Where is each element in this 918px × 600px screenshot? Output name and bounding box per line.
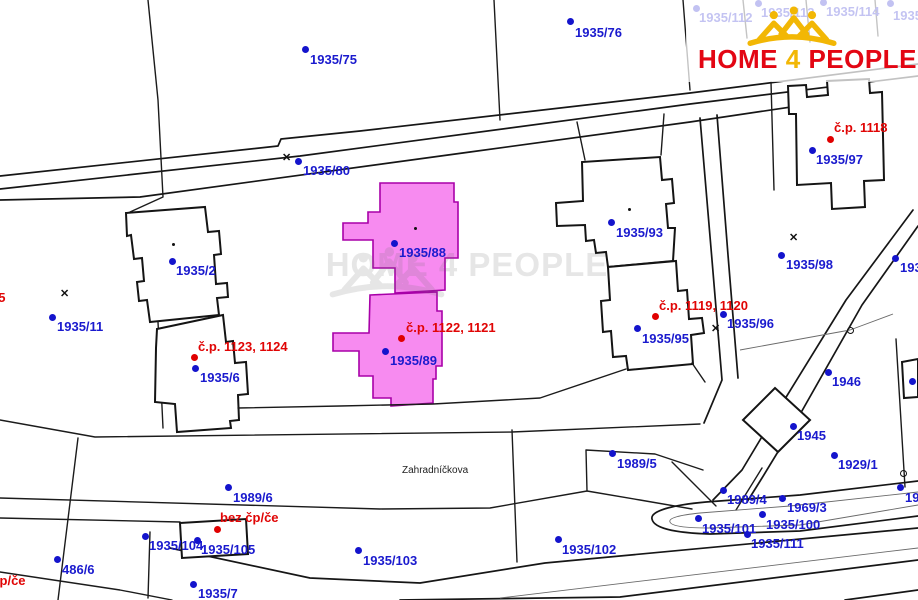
logo-four: 4 [786, 44, 801, 74]
highlighted-parcel-1935-89 [333, 292, 442, 406]
buildings-layer [126, 79, 918, 558]
crown-icon [738, 6, 846, 46]
highlighted-parcels [333, 183, 458, 406]
building-right-edge [902, 359, 918, 398]
building-1935-95 [601, 261, 704, 370]
logo-text: HOME 4 PEOPLE [698, 44, 908, 75]
map-geometry [0, 0, 918, 600]
building-1935-93 [556, 157, 675, 267]
building-bez-cp [180, 519, 248, 558]
building-1935-2 [126, 207, 228, 322]
logo-home: HOME [698, 44, 778, 74]
building-1945 [743, 388, 810, 452]
cadastral-map: HOME 4 PEOPLE 1935/751935/761935/801935/… [0, 0, 918, 600]
boundaries-layer [0, 0, 918, 600]
building-cp-1118 [788, 79, 884, 209]
logo-people: PEOPLE [808, 44, 916, 74]
home4people-logo: HOME 4 PEOPLE [686, 0, 918, 82]
building-1935-6 [155, 315, 248, 432]
highlighted-parcel-1935-88 [343, 183, 458, 293]
